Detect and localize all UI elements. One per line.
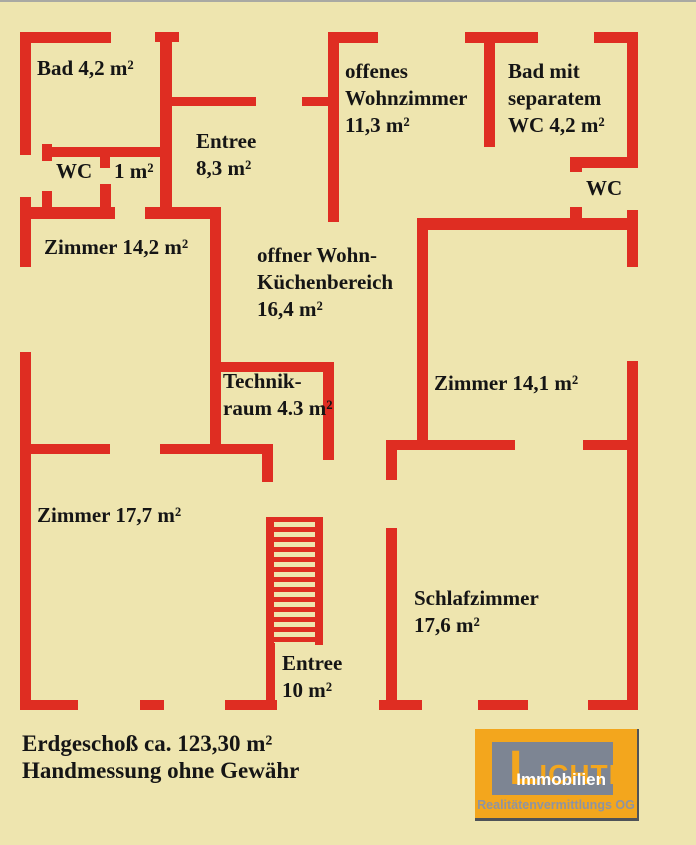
top-edge-line [0,0,696,2]
wall [20,700,78,710]
wall [417,218,428,446]
room-label-bad: Bad 4,2 m² [37,55,134,82]
wall [30,207,115,219]
room-label-schlafzimmer: Schlafzimmer 17,6 m² [414,585,539,639]
wall [42,191,52,208]
wall [266,643,275,705]
room-label-wc-left: WC [56,158,92,185]
wall [484,32,495,147]
wall [465,32,538,43]
room-label-entree-upper: Entree 8,3 m² [196,128,256,182]
wall [588,700,638,710]
room-label-entree-lower: Entree 10 m² [282,650,342,704]
wall [160,444,272,454]
wall [262,444,273,482]
wall [100,184,111,208]
room-label-wohnzimmer: offenes Wohnzimmer 11,3 m² [345,58,467,139]
wall [627,32,638,168]
wall [570,157,582,172]
wall [627,361,638,710]
room-label-zimmer-177: Zimmer 17,7 m² [37,502,181,529]
room-label-zimmer-141: Zimmer 14,1 m² [434,370,578,397]
wall [417,218,631,230]
wall [140,700,164,710]
footer-disclaimer-text: Handmessung ohne Gewähr [22,757,299,784]
wall [478,700,528,710]
company-logo: LICHTL Immobilien Realitätenvermittlungs… [475,729,639,821]
wall [42,147,160,157]
wall [583,440,631,450]
wall [386,440,515,450]
stairs [266,517,323,645]
logo-tagline: Realitätenvermittlungs OG [475,799,637,812]
wall [210,207,221,447]
logo-gray-box: LICHTL Immobilien [492,742,613,795]
room-label-zimmer-142: Zimmer 14,2 m² [44,234,188,261]
room-label-kuechenbereich: offner Wohn- Küchenbereich 16,4 m² [257,242,393,323]
wall [20,32,31,155]
wall [145,207,217,219]
wall [22,32,111,43]
wall [302,97,328,106]
room-label-wc-left-area: 1 m² [114,158,154,185]
room-label-wc-right: WC [586,175,622,202]
wall [100,157,110,168]
room-label-technikraum: Technik- raum 4.3 m² [223,368,333,422]
wall [386,440,397,480]
wall [25,444,110,454]
wall [20,352,31,710]
footer-area-text: Erdgeschoß ca. 123,30 m² [22,730,272,757]
floor-plan: Bad 4,2 m² WC 1 m² Entree 8,3 m² offenes… [0,0,696,845]
wall [328,32,339,222]
wall [172,97,256,106]
wall [386,528,397,705]
wall [160,32,172,213]
logo-subtitle: Immobilien [516,771,606,788]
room-label-bad-sep-wc: Bad mit separatem WC 4,2 m² [508,58,605,139]
